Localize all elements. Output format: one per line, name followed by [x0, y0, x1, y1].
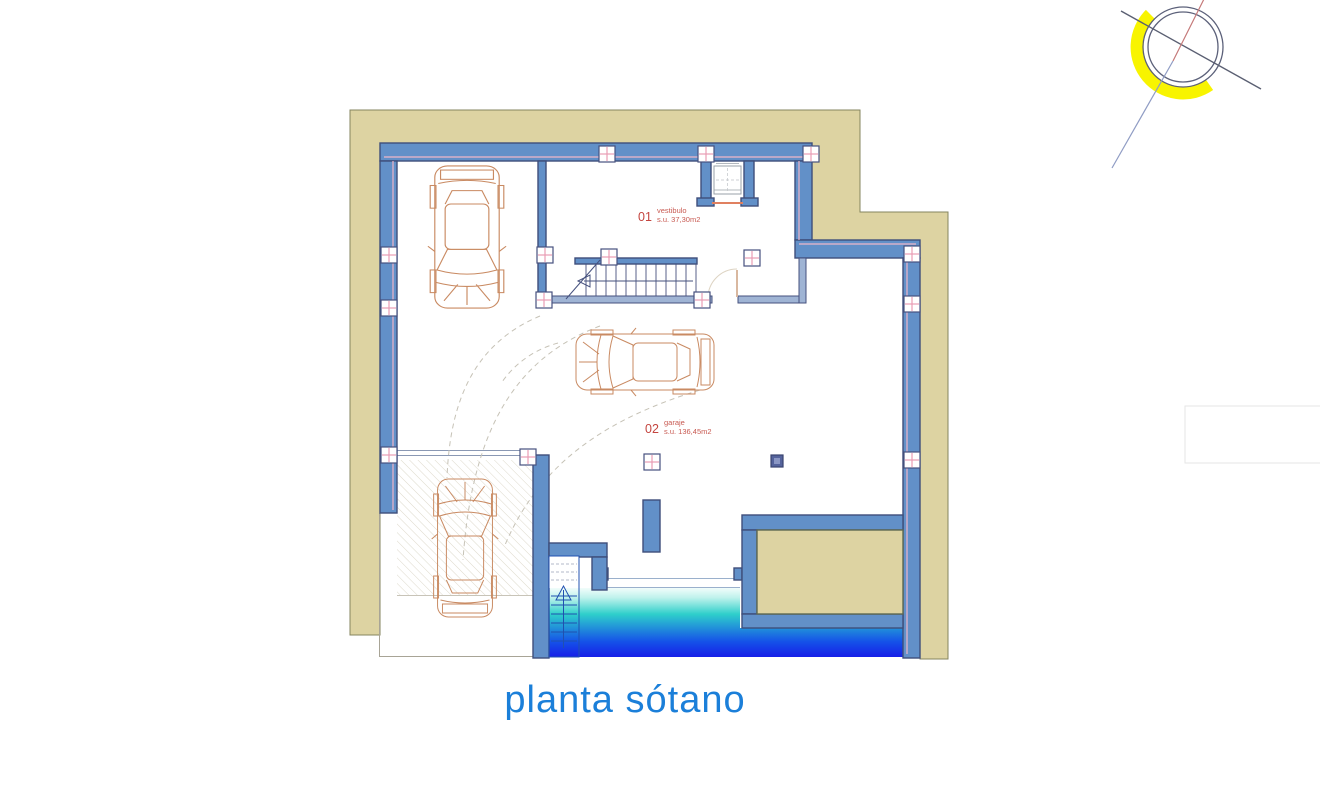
plan-title: planta sótano — [504, 679, 745, 721]
north-compass-icon — [1112, 0, 1261, 168]
room-label-01: 01 vestibulo s.u. 37,30m2 — [638, 206, 700, 224]
free-pillar-core — [774, 458, 780, 464]
room-02-area: s.u. 136,45m2 — [664, 427, 712, 436]
room-01-area: s.u. 37,30m2 — [657, 215, 700, 224]
ghost-rectangle — [1185, 406, 1320, 463]
floor-plan-svg: 01 vestibulo s.u. 37,30m2 02 garaje s.u.… — [0, 0, 1320, 800]
garage-door — [397, 451, 533, 456]
room-02-name: garaje — [664, 418, 685, 427]
vestibule-door — [708, 269, 737, 298]
room-01-number: 01 — [638, 210, 652, 224]
car-garage-1 — [428, 166, 506, 308]
ramp-hatch — [397, 460, 533, 596]
room-01-name: vestibulo — [657, 206, 687, 215]
car-garage-2 — [576, 328, 714, 396]
floor-plan-canvas: 01 vestibulo s.u. 37,30m2 02 garaje s.u.… — [0, 0, 1320, 800]
elevator — [697, 161, 758, 206]
staircase — [566, 258, 697, 299]
interior-walls — [538, 161, 806, 303]
machine-room — [757, 530, 903, 614]
room-02-number: 02 — [645, 422, 659, 436]
room-label-02: 02 garaje s.u. 136,45m2 — [645, 418, 712, 436]
